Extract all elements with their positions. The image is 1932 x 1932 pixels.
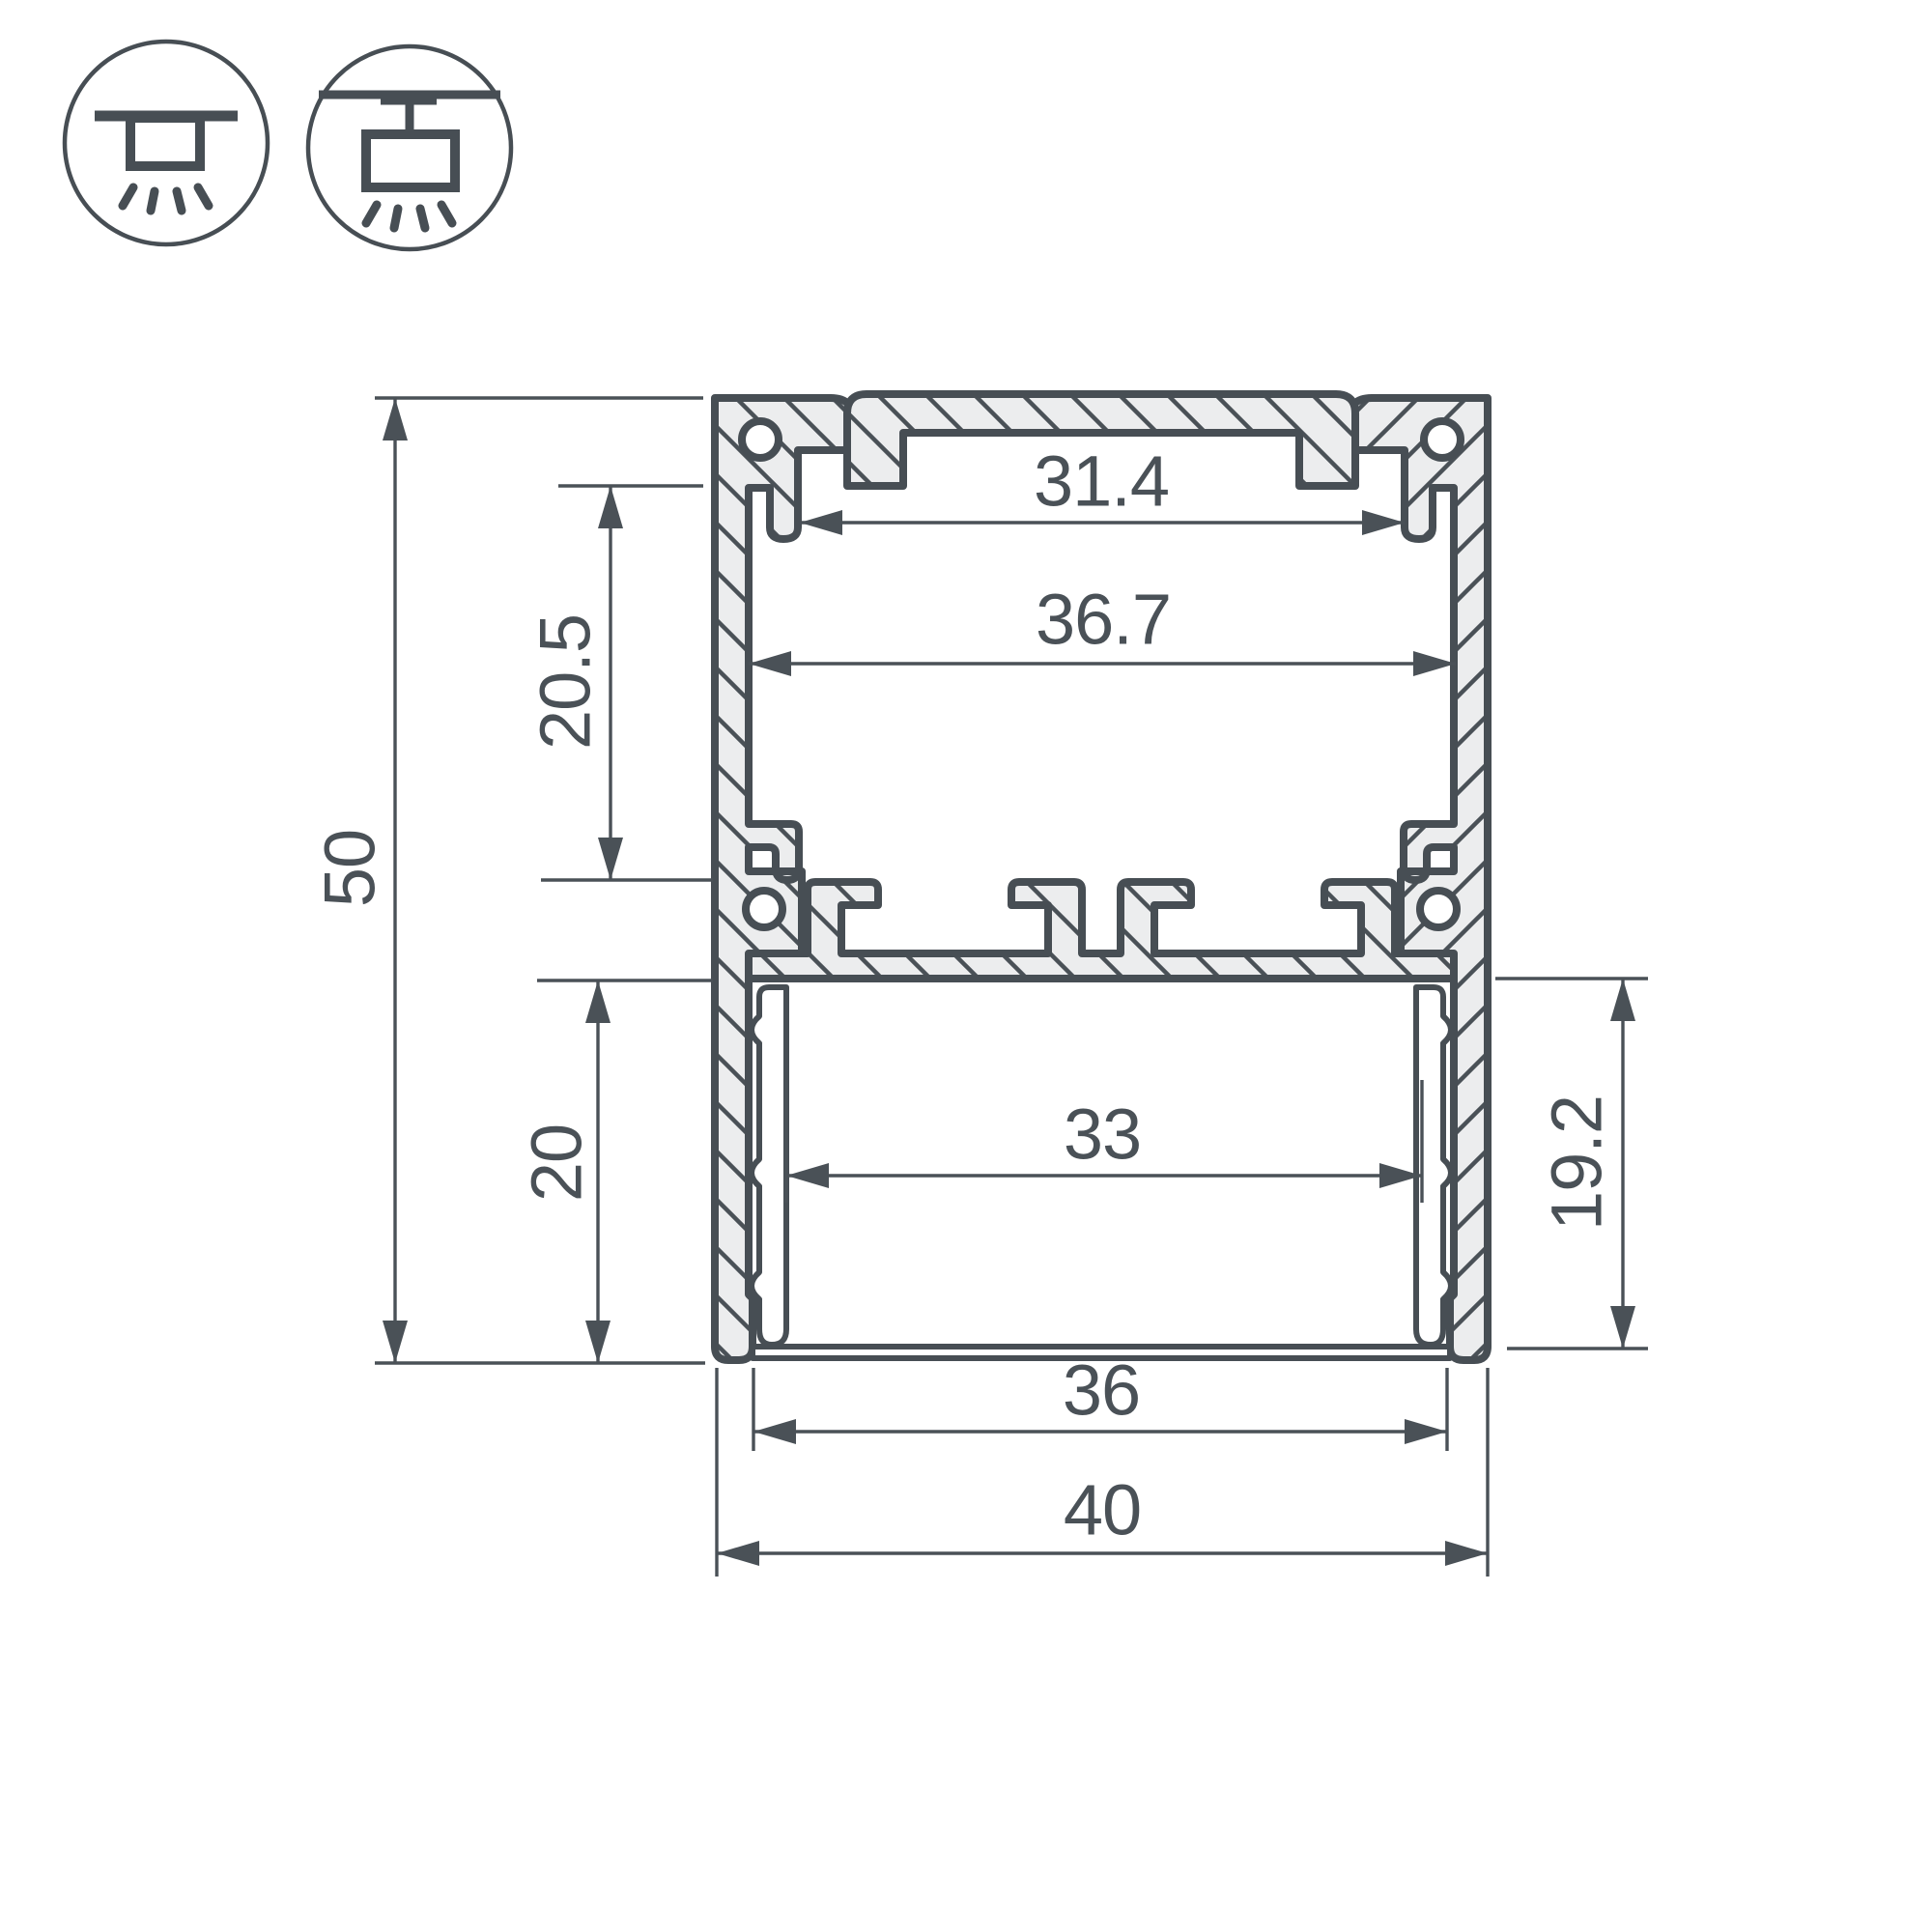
dimension-label: 19.2 [1537,1095,1617,1231]
dimension-36.7: 36.7 [749,580,1456,677]
dimension-20.5: 20.5 [526,486,714,880]
dimension-20: 20 [517,980,714,1363]
screw-boss-notch [1420,891,1457,927]
profile-cross-section [715,394,1488,1360]
dimension-33: 33 [786,1080,1422,1203]
dimension-label: 33 [1064,1094,1141,1175]
screw-boss-notch [746,891,782,927]
dimension-label: 31.4 [1034,441,1169,522]
dimension-label: 20 [517,1124,597,1202]
dimension-label: 50 [310,830,390,907]
dimension-annotations: 31.436.73336405020.52019.2 [310,398,1649,1577]
dimension-36: 36 [753,1350,1447,1452]
profile-lower-liner-left [752,987,786,1345]
technical-drawing: 31.436.73336405020.52019.2 [0,0,1932,1932]
dimension-label: 20.5 [526,614,606,750]
dimension-19.2: 19.2 [1495,979,1648,1349]
dimension-label: 36.7 [1036,580,1171,660]
dimension-label: 40 [1064,1470,1141,1550]
screw-boss-notch [742,421,779,458]
dimension-label: 36 [1063,1350,1140,1431]
pendant-mount-icon [308,46,511,249]
profile-middle-shelf [749,882,1454,979]
surface-mount-icon [65,42,268,244]
screw-boss-notch [1424,421,1461,458]
